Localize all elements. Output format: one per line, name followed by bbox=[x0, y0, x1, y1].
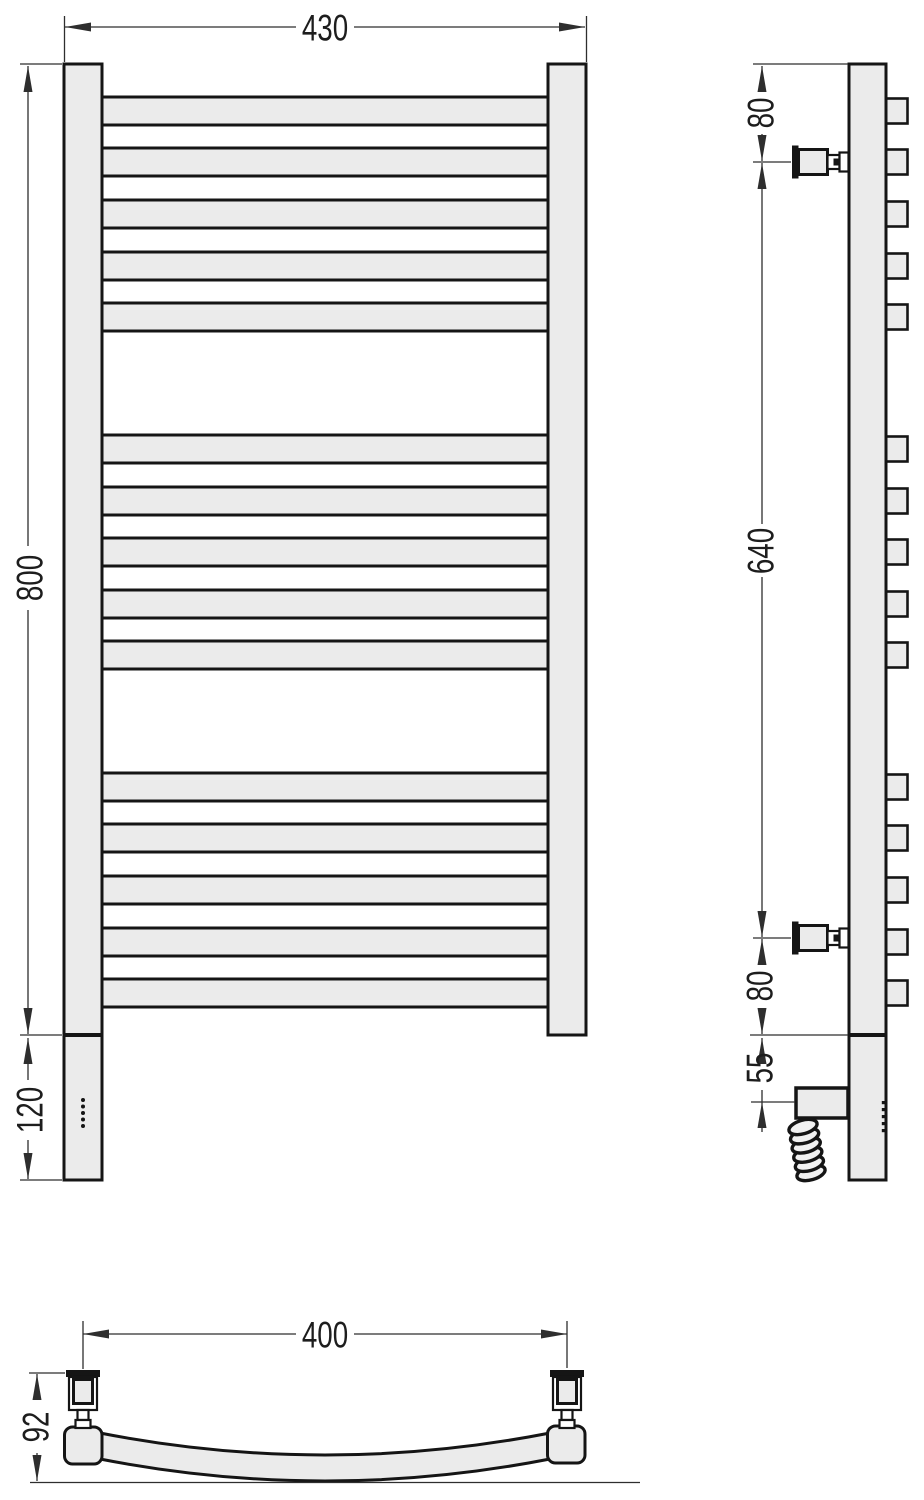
front-view bbox=[20, 16, 587, 1180]
led-dot bbox=[81, 1124, 85, 1128]
rung-stub bbox=[886, 99, 908, 124]
dim-label-side-element: 55 bbox=[742, 1053, 779, 1084]
bracket-stem-inner bbox=[558, 1380, 577, 1404]
bracket-stem-inner bbox=[74, 1380, 93, 1404]
bracket-neck bbox=[562, 1410, 573, 1420]
led-dot-side bbox=[882, 1101, 885, 1104]
rung bbox=[102, 824, 548, 852]
curved-rail bbox=[100, 1433, 550, 1481]
rung-stub bbox=[886, 540, 908, 565]
led-dot bbox=[81, 1118, 85, 1122]
dimension-arrow bbox=[758, 66, 767, 92]
rung bbox=[102, 200, 548, 228]
rung-stub bbox=[886, 254, 908, 279]
front-right-post bbox=[548, 64, 586, 1035]
dimension-arrow bbox=[83, 1330, 109, 1339]
side-view bbox=[750, 64, 908, 1184]
bracket-collar bbox=[560, 1420, 575, 1428]
rung-stub bbox=[886, 305, 908, 330]
dimension-arrow bbox=[758, 939, 767, 965]
rung bbox=[102, 876, 548, 904]
rung bbox=[102, 538, 548, 566]
bracket-collar bbox=[840, 153, 849, 172]
bracket-pin bbox=[834, 935, 841, 942]
rung-stub bbox=[886, 981, 908, 1006]
dimension-arrow bbox=[24, 1038, 33, 1064]
bracket-neck bbox=[78, 1410, 89, 1420]
dimension-arrow bbox=[24, 66, 33, 92]
dimension-arrow bbox=[758, 135, 767, 161]
dimension-arrow bbox=[758, 1102, 767, 1128]
rung-stub bbox=[886, 878, 908, 903]
bottom-left-block bbox=[65, 1427, 103, 1464]
rung-stub bbox=[886, 489, 908, 514]
dimension-arrow bbox=[758, 911, 767, 937]
dimension-arrow bbox=[65, 23, 91, 32]
rung bbox=[102, 590, 548, 618]
rung-stub bbox=[886, 202, 908, 227]
rung bbox=[102, 303, 548, 331]
rung bbox=[102, 252, 548, 280]
wall-bracket-top bbox=[792, 146, 849, 179]
led-dot-side bbox=[882, 1122, 885, 1125]
wall-bracket-bottom bbox=[792, 922, 849, 955]
front-rungs bbox=[102, 97, 548, 1007]
rung bbox=[102, 148, 548, 176]
rung-stub bbox=[886, 150, 908, 175]
dimension-arrow bbox=[758, 163, 767, 189]
bracket-stem bbox=[799, 150, 828, 175]
dim-label-side-bottom: 80 bbox=[742, 971, 779, 1002]
dimension-arrow bbox=[541, 1330, 567, 1339]
rung-stub bbox=[886, 930, 908, 955]
rung-stub bbox=[886, 643, 908, 668]
bottom-bracket-left bbox=[66, 1370, 100, 1428]
rung-stub bbox=[886, 437, 908, 462]
front-left-post bbox=[64, 64, 102, 1035]
dimension-arrow bbox=[24, 1008, 33, 1034]
towel-rail-drawing bbox=[0, 0, 924, 1500]
rung bbox=[102, 979, 548, 1007]
bottom-right-block bbox=[548, 1426, 586, 1463]
dim-label-side-span: 640 bbox=[743, 528, 780, 574]
bracket-stem bbox=[799, 926, 828, 951]
side-post bbox=[849, 64, 886, 1035]
rung-stub bbox=[886, 775, 908, 800]
rung bbox=[102, 97, 548, 125]
side-rung-stubs bbox=[886, 99, 908, 1006]
led-dot-side bbox=[882, 1129, 885, 1132]
rung bbox=[102, 928, 548, 956]
dimension-arrow bbox=[33, 1374, 42, 1400]
dim-label-bottom-span: 400 bbox=[302, 1317, 348, 1354]
spiral-cable bbox=[787, 1116, 827, 1183]
rung bbox=[102, 641, 548, 669]
dim-label-front-lower: 120 bbox=[12, 1087, 49, 1133]
dimension-arrow bbox=[559, 23, 585, 32]
dim-label-front-width: 430 bbox=[302, 10, 348, 47]
led-dot bbox=[81, 1105, 85, 1109]
led-dot-side bbox=[882, 1108, 885, 1111]
dimension-arrow bbox=[33, 1455, 42, 1481]
dimension-arrow bbox=[24, 1153, 33, 1179]
led-dot bbox=[81, 1111, 85, 1115]
rung bbox=[102, 487, 548, 515]
bracket-pin bbox=[834, 159, 841, 166]
heating-element-box bbox=[796, 1088, 848, 1118]
dimension-arrow bbox=[758, 1008, 767, 1034]
bracket-collar bbox=[840, 929, 849, 948]
dim-label-side-top: 80 bbox=[743, 98, 780, 129]
bottom-bracket-right bbox=[550, 1370, 584, 1428]
dim-label-front-height: 800 bbox=[12, 555, 49, 601]
drawing-canvas: 430 800 120 80 640 80 55 400 92 bbox=[0, 0, 924, 1500]
bracket-collar bbox=[76, 1420, 91, 1428]
rung bbox=[102, 435, 548, 463]
led-dot bbox=[81, 1098, 85, 1102]
side-heater-housing bbox=[849, 1035, 886, 1180]
dim-label-bottom-depth: 92 bbox=[18, 1412, 55, 1443]
led-dot-side bbox=[882, 1115, 885, 1118]
rung bbox=[102, 773, 548, 801]
rung-stub bbox=[886, 826, 908, 851]
rung-stub bbox=[886, 592, 908, 617]
